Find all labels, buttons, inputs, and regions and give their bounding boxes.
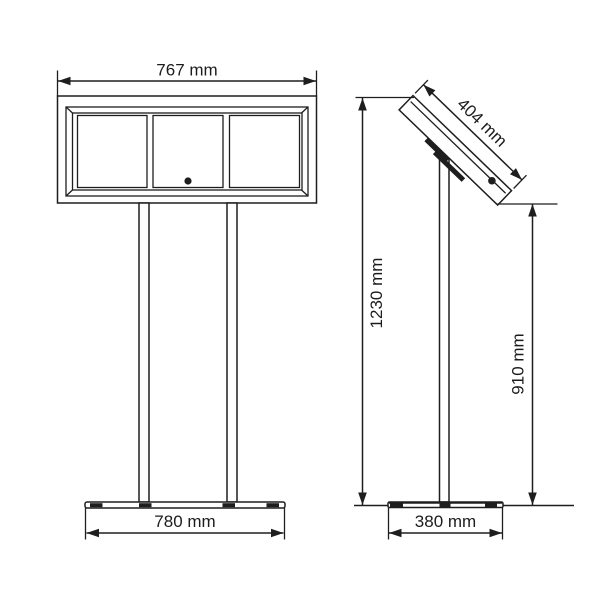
panel-right [230, 116, 300, 188]
side-pole [440, 146, 450, 502]
base-depth-label: 380 mm [415, 512, 476, 531]
front-cabinet [58, 96, 317, 203]
arrowhead-down-icon [358, 493, 367, 506]
underside-height-dimension: 910 mm [498, 204, 558, 505]
side-display-box [399, 96, 511, 206]
foot-pad [390, 503, 403, 507]
panel-center [153, 116, 223, 188]
stand-drawing-canvas: 767 mm [0, 0, 600, 600]
total-height-dimension: 1230 mm [356, 98, 415, 506]
foot-pad [90, 503, 103, 507]
arrowhead-right-icon [271, 529, 284, 538]
front-board-width-label: 767 mm [156, 61, 217, 80]
arrowhead-down-icon [528, 493, 537, 506]
side-base [388, 502, 503, 508]
front-base-bar [85, 502, 285, 508]
arrowhead-up-icon [528, 204, 537, 217]
foot-pad [485, 503, 497, 507]
foot-pad [223, 503, 236, 507]
arrowhead-right-icon [304, 77, 317, 86]
front-leg-left [139, 203, 149, 502]
dimension-drawing: 767 mm [0, 0, 600, 600]
arrowhead-left-icon [58, 77, 71, 86]
panel-left [78, 116, 148, 188]
arrowhead-left-icon [389, 529, 402, 538]
side-view: 404 mm 1230 mm 910 mm 380 mm [354, 68, 574, 539]
lock-dot-icon [184, 177, 191, 184]
arrowhead-right-icon [490, 529, 503, 538]
foot-pad [267, 503, 280, 507]
side-display-assembly: 404 mm [395, 68, 538, 209]
total-height-label: 1230 mm [367, 258, 386, 329]
base-depth-dimension: 380 mm [389, 507, 503, 540]
arrowhead-up-icon [358, 98, 367, 111]
front-base-width-dimension: 780 mm [86, 508, 285, 540]
front-base-width-label: 780 mm [154, 512, 215, 531]
arrowhead-left-icon [87, 529, 100, 538]
foot-pad [440, 503, 451, 507]
front-width-dimension: 767 mm [58, 61, 317, 97]
underside-height-label: 910 mm [509, 333, 528, 394]
front-leg-right [227, 203, 237, 502]
front-base [85, 502, 285, 508]
front-view: 767 mm [58, 61, 317, 540]
foot-pad [139, 503, 152, 507]
